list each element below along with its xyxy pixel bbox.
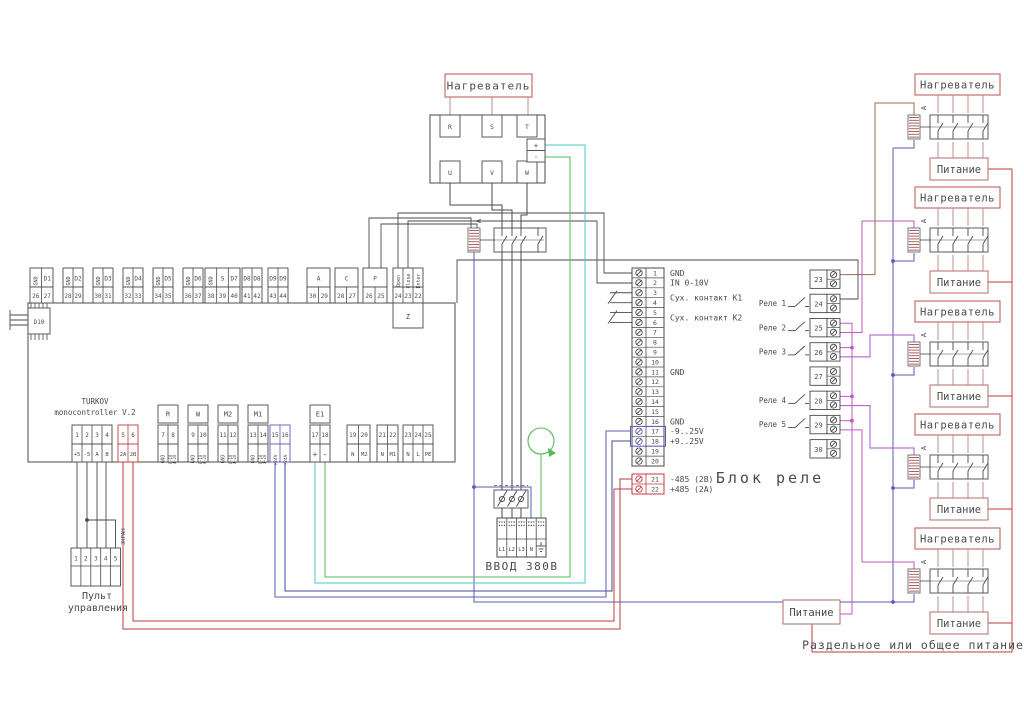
terminal-header: GND [96,276,102,285]
strip-number: 2 [653,279,657,287]
unit-power-label: Питание [937,391,981,403]
bottom-terminal-block: 1234+5-5AB [72,425,112,462]
heater-unit: НагревательАПитание [908,414,1000,520]
main-contactor: А [468,218,546,252]
terminal-number: 23 [404,432,412,439]
terminal-label: + [313,450,318,459]
clamp-dot [528,525,529,526]
terminal-number: 16 [281,432,289,439]
top-terminal-block: C2827 [335,268,358,303]
junction-dot [472,485,476,489]
terminal-header: D7 [231,276,239,283]
bottom-terminal-block: 1516+24V-24V [270,425,290,465]
terminal-header: D1 [44,276,52,283]
relay-label: Реле 3 [759,347,786,356]
strip-label: GND [670,417,685,426]
panel-label-line1: Пульт [82,591,112,602]
clamp-dot [533,521,534,522]
terminal-number: 41 [243,293,251,300]
clamp-dot [543,525,544,526]
bottom-terminal-block: 1920NM2 [347,425,370,462]
clamp-dot [531,521,532,522]
clamp-dot [531,525,532,526]
clamp-dot [533,525,534,526]
wire-p26-coil [369,218,471,268]
unit-power-label: Питание [937,504,981,516]
terminal-strip: 1GND2IN 0-10V34567891011GND1213141516GND… [631,268,743,494]
input-cell-label: N [530,547,533,553]
wiring-diagram: D10GNDD12627GNDD22829GNDD33031GNDD43233G… [0,0,1024,723]
terminal-number: 13 [249,432,257,439]
strip-number: 17 [651,428,659,436]
relay-block: 2324252627282930Реле 1Реле 2Реле 3Реле 4… [759,270,840,458]
power-input: L1L2L3N [494,486,546,558]
relay-terminal-number: 25 [814,325,822,333]
top-terminal-block: GNDD12627 [30,268,53,303]
junction-dot [850,419,854,423]
relay-contact-icon [795,419,805,428]
unit-contactor: А [908,445,988,479]
wire-coil-common-link [893,367,914,375]
terminal-number: 14 [259,432,267,439]
terminal-number: 17 [311,432,319,439]
terminal-label: 2A [120,452,127,458]
input-cell-label: L1 [499,547,506,553]
terminal-header: GND [126,276,132,285]
strip-number: 10 [651,358,659,366]
phase-label: S [490,123,494,131]
top-terminal-block: GNDD43233 [123,268,143,303]
junction-dot [850,346,854,350]
terminal-number: 22 [389,432,397,439]
heater-unit: НагревательАПитание [908,187,1000,293]
clamp-dot [514,521,515,522]
terminal-number: 28 [64,293,72,300]
contactor-letter: А [920,445,928,450]
relay-contact-icon [795,394,805,403]
junction-dot [891,259,895,263]
strip-number: 3 [653,289,657,297]
strip-label: -9..25V [670,427,704,436]
terminal-number: 1 [75,432,79,439]
terminal-label: GND [221,455,227,464]
unit-power-label: Питание [937,618,981,630]
terminal-number: 32 [124,293,132,300]
bottom-caption: Раздельное или общее питание [802,638,1024,652]
terminal-header: D2 [74,276,82,283]
terminal-number: 24 [394,293,402,300]
clamp-dot [523,521,524,522]
wire-relay-feed-bus [840,323,852,614]
bottom-terminal-block: M21112GND0-104-20 [218,405,238,464]
top-terminal-block: A3029 [307,268,330,303]
terminal-header: D4 [134,276,142,283]
unit-power-label: Питание [937,277,981,289]
clamp-dot [518,525,519,526]
terminal-label: GND [161,455,167,464]
terminal-number: 24 [414,432,422,439]
strip-number: 5 [653,309,657,317]
bottom-terminal-block: 2122NM1 [377,425,398,462]
controller: D10GNDD12627GNDD22829GNDD33031GNDD43233G… [10,268,455,465]
terminal-label: 4-20 [202,454,207,464]
strip-number: 12 [651,378,659,386]
terminal-number: 37 [194,293,202,300]
terminal-header: GND [209,276,215,285]
terminal-number: 28 [337,293,345,300]
terminal-number: 21 [379,432,387,439]
contactor-coil [908,115,920,139]
clamp-dot [501,521,502,522]
terminal-number: 40 [231,293,239,300]
relay-contact-icon [795,297,805,306]
plus-label: + [534,142,538,150]
terminal-number: 4 [105,432,109,439]
wire-24v-minus [285,441,631,591]
strip-label: +9..25V [670,437,704,446]
strip-number: 6 [653,319,657,327]
terminal-number: 6 [131,432,135,439]
terminal-number: 27 [349,293,357,300]
clamp-dot [499,525,500,526]
top-terminal-block: GNDD33031 [93,268,113,303]
junction-dot [850,395,854,399]
block-header-label: M2 [224,411,232,419]
relay-terminal-number: 26 [814,349,822,357]
strip-number: 18 [651,438,659,446]
clamp-dot [504,525,505,526]
terminal-header: D8 [253,276,261,283]
panel-terminal-number: 4 [104,556,108,563]
clamp-dot [509,521,510,522]
unit-contactor: А [908,218,988,252]
strip-number: 21 [651,475,659,483]
terminal-label: +5 [74,452,81,458]
wire-shield [87,520,116,548]
terminal-header: GND [186,276,192,285]
terminal-header: S [221,276,225,283]
strip-label: GND [670,368,685,377]
terminal-number: 2 [85,432,89,439]
strip-label: -485 (2B) [670,475,713,484]
terminal-number: 30 [309,293,317,300]
controller-title-line1: TURKOV [81,397,109,406]
relay-terminal-number: 28 [814,397,822,405]
heater-label: Нагреватель [447,80,531,93]
earth-arrow-icon [548,448,556,457]
terminal-header: P [373,276,377,283]
strip-label-k2: Сух. контакт К2 [670,313,742,322]
relay-terminal-number: 24 [814,300,822,308]
controller-title-line2: monocontroller V.2 [54,408,135,417]
clamp-dot [538,521,539,522]
terminal-number: 44 [279,293,287,300]
main-heater: НагревательRSTUVW+- [430,74,545,183]
strip-number: 1 [653,269,657,277]
terminal-header: GND [34,276,40,285]
terminal-label: 2B [130,452,137,458]
terminal-label: N [406,452,409,458]
terminal-number: 15 [271,432,279,439]
sub-label: Z [406,313,410,321]
relay-terminal-number: 29 [814,422,822,430]
unit-power-label: Питание [937,164,981,176]
heater-unit: НагревательАПитание [908,74,1000,180]
clamp-dot [509,525,510,526]
terminal-label: 4-20 [172,454,177,464]
vvod-380v-label: ВВОД 380В [485,560,558,573]
strip-number: 20 [651,457,659,465]
heater-unit: НагревательАПитание [908,301,1000,407]
heater-unit: НагревательАПитание [908,528,1000,634]
strip-number: 4 [653,299,657,307]
relay-terminal-number: 27 [814,373,822,381]
terminal-number: 31 [104,293,112,300]
unit-heater-label: Нагреватель [920,534,995,546]
clamp-dot [538,525,539,526]
terminal-label: 4-20 [262,454,267,464]
terminal-label: M1 [389,452,396,458]
contactor-coil [908,228,920,252]
bottom-terminal-block: 232425NLPE [403,425,433,462]
strip-label: GND [670,269,685,278]
wire-relay5-coil5 [840,430,914,569]
bottom-terminal-block: R78GND0-104-20 [158,405,178,464]
terminal-number: 42 [253,293,261,300]
terminal-number: 11 [219,432,227,439]
clamp-dot [504,521,505,522]
input-cell-label: L3 [518,547,525,553]
terminal-number: 8 [171,432,175,439]
phase-label: V [490,169,494,177]
terminal-header: D8 [243,276,251,283]
d10-label: D10 [34,319,45,326]
clamp-dot [540,521,541,522]
bottom-terminal-block: W910GND0-104-20 [188,405,208,464]
relay-terminal-number: 23 [814,276,822,284]
bottom-terminal-block: E11718+- [310,405,330,462]
relay-label: Реле 4 [759,396,787,405]
panel-terminal-number: 2 [84,556,88,563]
relay-contact-icon [795,346,805,355]
terminal-number: 9 [191,432,195,439]
contactor-coil [908,342,920,366]
terminal-label: GND [191,455,197,464]
terminal-label: N [351,452,354,458]
unit-contactor: А [908,559,988,593]
terminal-label: - [323,450,328,459]
terminal-header: Enter [416,273,422,288]
control-panel: 12345 [71,548,121,586]
terminal-number: 43 [269,293,277,300]
strip-label: +485 (2A) [670,485,713,494]
terminal-number: 26 [365,293,373,300]
wire-relay23-coil1 [840,103,914,275]
junction-dot [891,600,895,604]
strip-number: 14 [651,398,659,406]
terminal-number: 36 [184,293,192,300]
clamp-dot [501,525,502,526]
bottom-terminal-block: M11314GND0-104-20 [248,405,268,464]
terminal-header: D9 [269,276,277,283]
clamp-dot [528,521,529,522]
wire-coil-common-link [893,140,914,148]
strip-number: 9 [653,348,657,356]
terminal-header: Open [396,275,402,287]
unit-heater-label: Нагреватель [920,193,995,205]
terminal-number: 27 [44,293,52,300]
terminal-number: 25 [377,293,385,300]
phase-label: U [448,169,452,177]
terminal-header: Close [406,273,412,288]
contactor-coil [908,455,920,479]
phase-label: W [525,169,529,177]
bottom-power: Питание [783,600,840,624]
terminal-number: 20 [361,432,369,439]
relay-label: Реле 5 [759,420,786,429]
clamp-dot [499,521,500,522]
relay-terminal-number: 30 [814,446,822,454]
relay-contact-icon [795,322,805,331]
block-header-label: E1 [316,411,324,419]
junction-dot [891,486,895,490]
terminal-header: D9 [279,276,287,283]
terminal-label: 4-20 [232,454,237,464]
contactor-coil [908,569,920,593]
terminal-number: 18 [321,432,329,439]
panel-terminal-number: 1 [74,556,78,563]
strip-number: 7 [653,329,657,337]
top-terminal-block: P2625 [363,268,387,303]
unit-contactor: А [908,332,988,366]
clamp-dot [543,521,544,522]
terminal-number: 25 [424,432,432,439]
clamp-dot [521,525,522,526]
terminal-number: 7 [161,432,165,439]
panel-terminal-number: 3 [94,556,98,563]
terminal-header: A [317,276,321,283]
strip-label: IN 0-10V [670,279,709,288]
wire-coil-common-link [893,480,914,488]
panel-terminal-number: 5 [114,556,118,563]
contactor-letter: А [475,218,483,223]
unit-heater-label: Нагреватель [920,307,995,319]
contactor-letter: А [920,105,928,110]
junction-dot [85,518,89,522]
terminal-header: D5 [164,276,172,283]
terminal-label: +24V [273,454,279,465]
unit-heater-label: Нагреватель [920,80,995,92]
terminal-label: -24V [283,454,289,465]
terminal-number: 22 [414,293,422,300]
clamp-dot [514,525,515,526]
terminal-header: GND [156,276,162,285]
strip-number: 15 [651,408,659,416]
relay-label: Реле 2 [759,323,786,332]
terminal-number: 35 [164,293,172,300]
terminal-label: GND [251,455,257,464]
clamp-dot [523,525,524,526]
contactor-coil [468,228,480,252]
phase-label: R [448,123,452,131]
strip-number: 11 [651,368,659,376]
junction-dot [891,373,895,377]
unit-heater-label: Нагреватель [920,420,995,432]
terminal-number: 3 [95,432,99,439]
strip-number: 22 [651,485,659,493]
clamp-dot [540,525,541,526]
terminal-number: 26 [32,293,40,300]
strip-number: 19 [651,447,659,455]
strip-number: 8 [653,339,657,347]
phase-label: T [525,123,529,131]
strip-label-k1: Сух. контакт К1 [670,294,742,303]
terminal-label: PE [425,452,432,458]
top-terminal-block: OpenCloseEnter242322Z [393,268,423,328]
clamp-dot [521,521,522,522]
terminal-number: 34 [154,293,162,300]
terminal-number: 23 [404,293,412,300]
top-terminal-block: D8D84142 [242,268,262,303]
terminal-header: GND [66,276,72,285]
terminal-label: N [381,452,384,458]
clamp-dot [511,525,512,526]
wire-p25-coil [381,224,477,268]
panel-body [71,548,121,586]
top-terminal-block: GNDD63637 [183,268,203,303]
top-terminal-block: GNDSD7383940 [205,268,240,303]
contactor-letter: А [920,332,928,337]
bottom-power-label: Питание [789,607,833,619]
terminal-number: 33 [134,293,142,300]
terminal-header: C [345,276,349,283]
unit-contactor: А [908,105,988,139]
bottom-terminal-block: 562A2B [118,425,138,462]
top-terminal-block: GNDD22829 [63,268,83,303]
terminal-number: 29 [74,293,82,300]
terminal-number: 29 [321,293,329,300]
terminal-number: 39 [219,293,227,300]
top-terminal-block: GNDD53435 [153,268,173,303]
panel-label-line2: управления [68,603,128,614]
minus-label: - [534,153,538,161]
block-header-label: M1 [254,411,262,419]
shield-label: ЭКРАН [121,528,127,545]
terminal-number: 30 [94,293,102,300]
contactor-letter: А [920,559,928,564]
wire-relay2-coil2 [840,221,914,333]
terminal-number: 12 [229,432,237,439]
clamp-dot [511,521,512,522]
terminal-number: 5 [121,432,125,439]
terminal-number: 10 [199,432,207,439]
top-terminal-block: D9D94344 [268,268,288,303]
relay-block-title: Блок реле [716,469,824,487]
input-cell-label: L2 [508,547,515,553]
wire-485-a [123,462,632,629]
relay-label: Реле 1 [759,299,786,308]
clamp-dot [518,521,519,522]
terminal-label: -5 [84,452,91,458]
wire-coil-common-link [893,253,914,261]
strip-number: 13 [651,388,659,396]
strip-number: 16 [651,418,659,426]
terminal-number: 19 [349,432,357,439]
wire-coil-common-link [893,594,914,602]
terminal-header: D3 [104,276,112,283]
terminal-label: M2 [361,452,368,458]
terminal-header: D6 [194,276,202,283]
